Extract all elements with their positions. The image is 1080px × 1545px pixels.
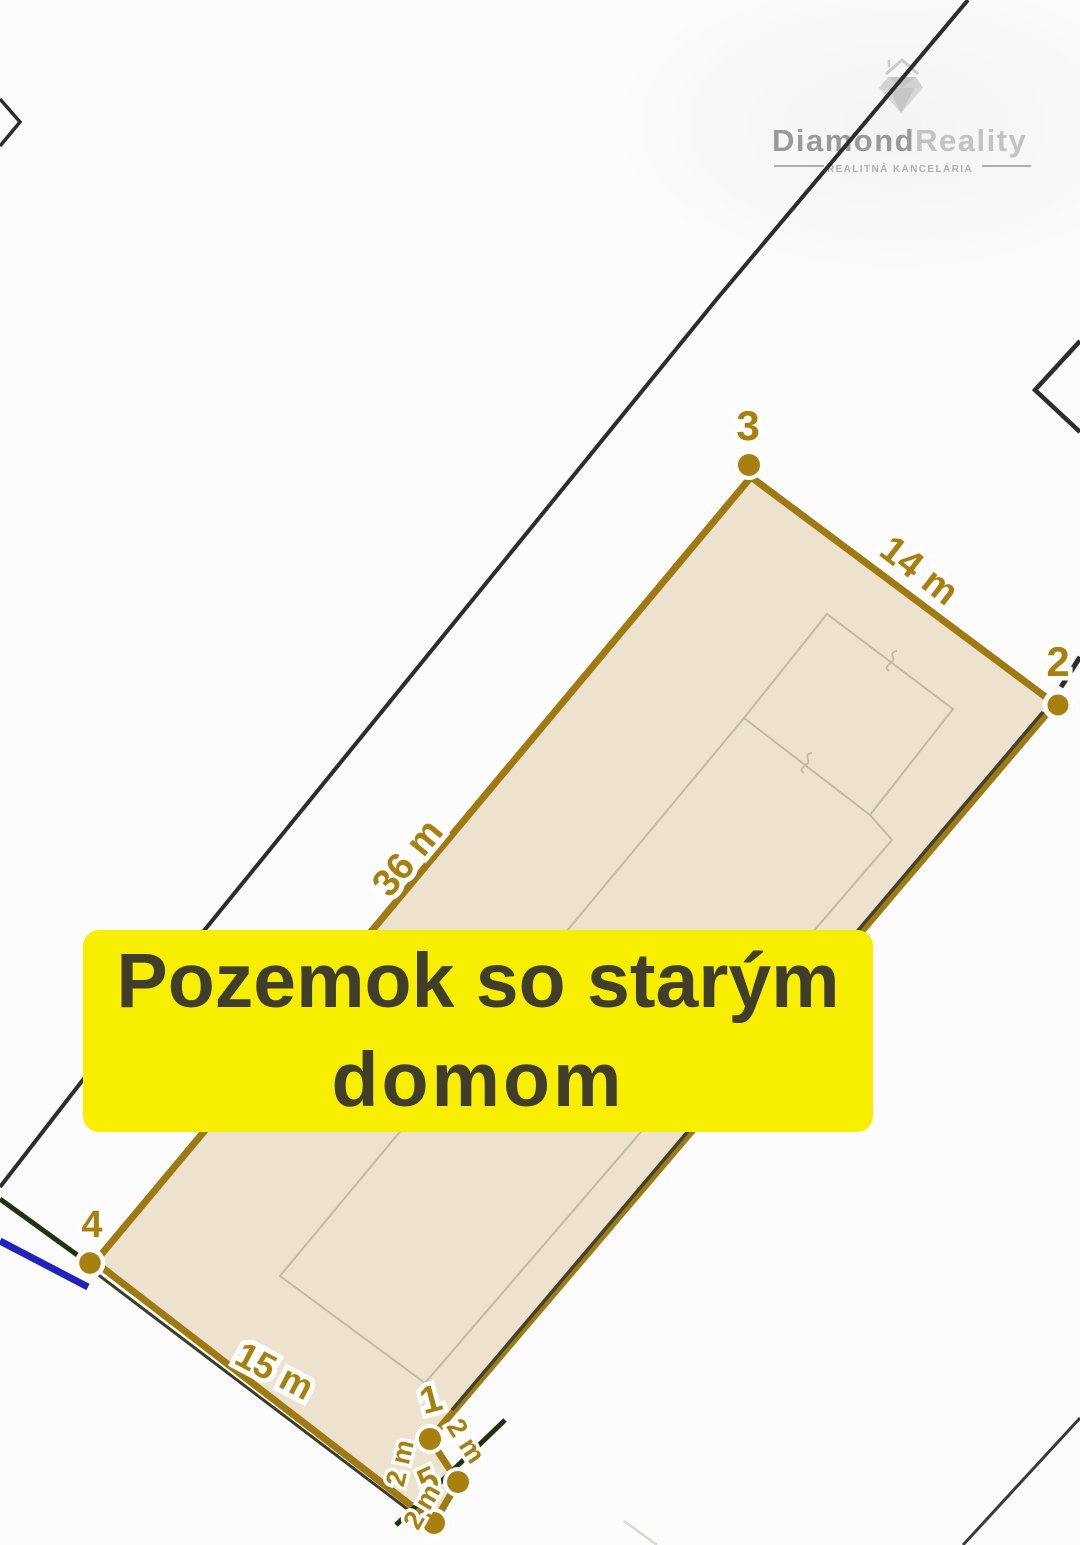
- svg-text:domom: domom: [331, 1037, 624, 1123]
- svg-text:3: 3: [736, 402, 759, 449]
- svg-text:DiamondReality: DiamondReality: [772, 123, 1027, 158]
- svg-text:4: 4: [81, 1204, 102, 1246]
- svg-text:Pozemok so starým: Pozemok so starým: [116, 938, 839, 1024]
- svg-text:REALITNÁ KANCELÁRIA: REALITNÁ KANCELÁRIA: [827, 162, 973, 175]
- svg-text:2: 2: [1046, 638, 1069, 685]
